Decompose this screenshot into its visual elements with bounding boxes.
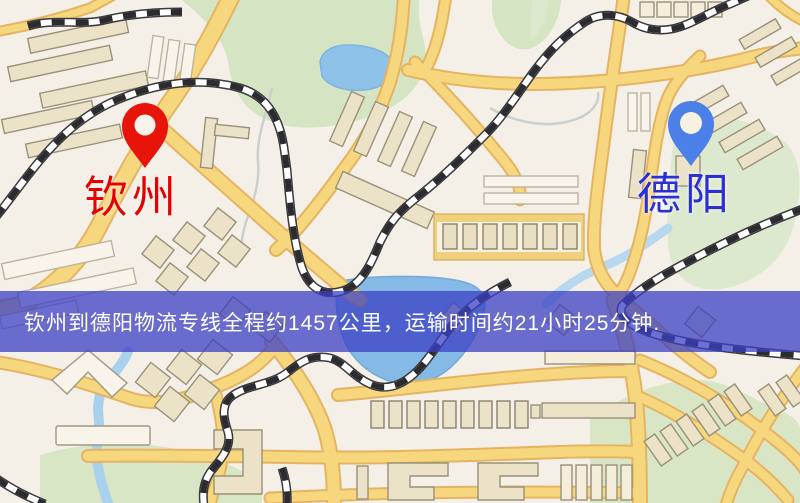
map-image[interactable] — [0, 0, 800, 503]
destination-city-label: 德阳 — [637, 173, 733, 217]
origin-city-label: 钦州 — [84, 176, 180, 220]
route-info-banner: 钦州到德阳物流专线全程约1457公里，运输时间约21小时25分钟. — [0, 291, 800, 352]
route-info-text: 钦州到德阳物流专线全程约1457公里，运输时间约21小时25分钟. — [0, 307, 660, 337]
map-viewport[interactable]: 钦州到德阳物流专线全程约1457公里，运输时间约21小时25分钟. 钦州 德阳 — [0, 0, 800, 503]
